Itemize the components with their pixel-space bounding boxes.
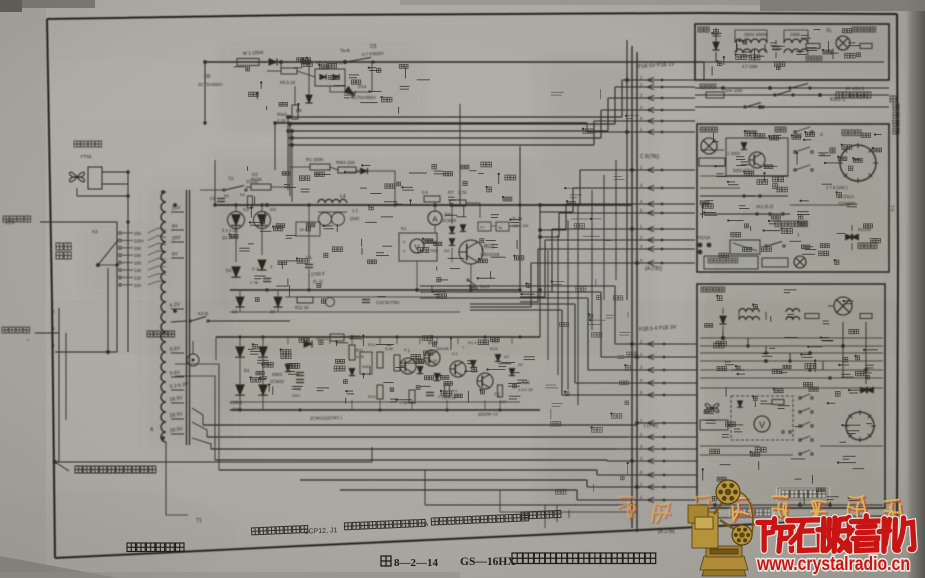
svg-text:140: 140 (134, 268, 142, 273)
svg-text:A: A (423, 521, 428, 528)
svg-text:M 1 /25W: M 1 /25W (243, 50, 264, 57)
svg-text:4.7 25W: 4.7 25W (742, 64, 758, 69)
svg-text:8—2—14: 8—2—14 (394, 557, 439, 569)
svg-text:P2(A)4: P2(A)4 (697, 235, 711, 240)
svg-text:5 0: 5 0 (452, 389, 457, 393)
svg-text:160: 160 (134, 261, 142, 266)
svg-text:XL: XL (826, 28, 832, 34)
svg-text:2 7B: 2 7B (250, 280, 259, 285)
svg-text:2W?: 2W? (292, 393, 301, 398)
svg-text:250: 250 (134, 231, 142, 236)
svg-text:220V: 220V (134, 238, 144, 243)
svg-text:C5: C5 (370, 44, 377, 50)
svg-text:C6: C6 (210, 196, 216, 201)
svg-text:T1: T1 (196, 518, 202, 524)
svg-text:6AV 10W: 6AV 10W (725, 88, 742, 93)
svg-text:K5: K5 (240, 192, 246, 197)
svg-text:R16 1K: R16 1K (424, 358, 438, 363)
svg-text:(A (7B(): (A (7B() (645, 266, 663, 272)
svg-text:T7: T7 (480, 226, 484, 230)
svg-text:A: A (432, 215, 438, 224)
svg-text:Ka-6: Ka-6 (480, 284, 490, 289)
svg-text:7.6: 7.6 (890, 205, 895, 212)
svg-text:RW2: RW2 (277, 112, 287, 117)
svg-text:R14: R14 (368, 342, 376, 347)
svg-text:5.1K: 5.1K (385, 346, 394, 351)
svg-text:2CW20: 2CW20 (442, 218, 457, 223)
svg-text:L4: L4 (340, 194, 346, 200)
svg-text:180: 180 (134, 253, 142, 258)
svg-text:D14: D14 (358, 84, 367, 89)
svg-text:G2: G2 (270, 207, 277, 212)
svg-text:Ta-B: Ta-B (340, 48, 350, 54)
svg-text:D6: D6 (204, 74, 211, 80)
svg-text:USB-1: USB-1 (230, 400, 243, 405)
svg-text:2L Ja: 2L Ja (512, 216, 523, 221)
svg-text:R1 150K: R1 150K (306, 157, 324, 162)
svg-text:120: 120 (134, 275, 142, 280)
svg-text:C13 50 F/50: C13 50 F/50 (376, 300, 400, 305)
svg-text:KW1-1: KW1-1 (830, 97, 846, 103)
svg-text:T 1: T 1 (404, 348, 411, 353)
svg-text:RW4 22K: RW4 22K (336, 160, 355, 165)
svg-text:JK 400-3: JK 400-3 (845, 86, 865, 92)
svg-text:1000: 1000 (790, 32, 801, 37)
svg-text:1 2: 1 2 (352, 208, 358, 213)
svg-text:(2W): (2W) (350, 216, 360, 221)
svg-text:D6: D6 (296, 108, 302, 113)
svg-text:( (7 B): ( (7 B) (644, 423, 658, 429)
svg-text:100: 100 (134, 283, 142, 288)
svg-text:2700 F: 2700 F (311, 271, 326, 277)
svg-text:250V 400W: 250V 400W (744, 32, 768, 37)
svg-text:DW1: DW1 (362, 365, 370, 369)
svg-text:C: C (438, 394, 441, 399)
svg-text:www.crystalradio.cn: www.crystalradio.cn (756, 553, 910, 575)
svg-text:C B(7B(): C B(7B() (640, 154, 660, 160)
svg-text:2CP12, J1: 2CP12, J1 (305, 527, 338, 535)
svg-text:YT02: YT02 (80, 154, 92, 160)
svg-text:K6: K6 (224, 193, 230, 198)
svg-text:DW3: DW3 (272, 372, 282, 377)
svg-text:0.5: 0.5 (422, 190, 428, 195)
svg-text:D1: D1 (226, 268, 232, 273)
svg-text:T2: T2 (228, 176, 234, 182)
svg-text:D 3: D 3 (252, 266, 259, 271)
svg-text:(A 17B(: (A 17B( (658, 529, 675, 535)
svg-text:2 7.6 (160 ): 2 7.6 (160 ) (826, 185, 848, 190)
svg-text:34: 34 (518, 362, 523, 367)
svg-text:GS—16HX: GS—16HX (460, 556, 516, 568)
svg-text:~: ~ (26, 338, 29, 344)
svg-text:K1: K1 (401, 226, 407, 231)
svg-text:K2: K2 (92, 229, 98, 235)
svg-text:2CW20: 2CW20 (270, 379, 285, 384)
svg-text:R13: R13 (368, 394, 376, 399)
svg-text:7.5K: 7.5K (400, 400, 409, 405)
svg-text:T 2: T 2 (494, 392, 501, 397)
svg-text:2CZ11: 2CZ11 (246, 179, 259, 184)
svg-text:3CT3A/600V: 3CT3A/600V (352, 95, 376, 100)
svg-text:2.7K: 2.7K (458, 190, 467, 195)
svg-text:R1 4: R1 4 (468, 340, 477, 345)
svg-text:1 250V: 1 250V (727, 151, 740, 156)
svg-text:3DD101B: 3DD101B (480, 252, 500, 257)
svg-text:1.5-2 25: 1.5-2 25 (518, 387, 533, 392)
svg-text:R13: R13 (490, 346, 498, 351)
svg-text:R7: R7 (448, 190, 454, 195)
svg-text:3DK2B: 3DK2B (436, 346, 449, 351)
svg-text:4 1: 4 1 (452, 351, 458, 356)
svg-text:200: 200 (134, 246, 142, 251)
svg-text:3CT3A/600V: 3CT3A/600V (198, 82, 223, 87)
svg-text:K2-B: K2-B (198, 311, 208, 316)
svg-text:1d: 1d (232, 309, 237, 314)
svg-text:D1: D1 (244, 368, 250, 373)
svg-text:2d: 2d (270, 309, 275, 314)
svg-text:V: V (759, 420, 765, 430)
svg-text:1K1 (6.3): 1K1 (6.3) (756, 204, 774, 209)
svg-text:R5 5.1K: R5 5.1K (280, 80, 296, 85)
svg-text:~220: ~220 (2, 220, 14, 226)
svg-text:R12 1K: R12 1K (295, 305, 309, 310)
svg-text:D4: D4 (444, 248, 450, 253)
svg-text:D2: D2 (504, 354, 510, 359)
svg-text:3DD4F-12: 3DD4F-12 (478, 411, 499, 417)
svg-text:D2: D2 (252, 172, 258, 177)
svg-text:1W: 1W (500, 399, 506, 404)
